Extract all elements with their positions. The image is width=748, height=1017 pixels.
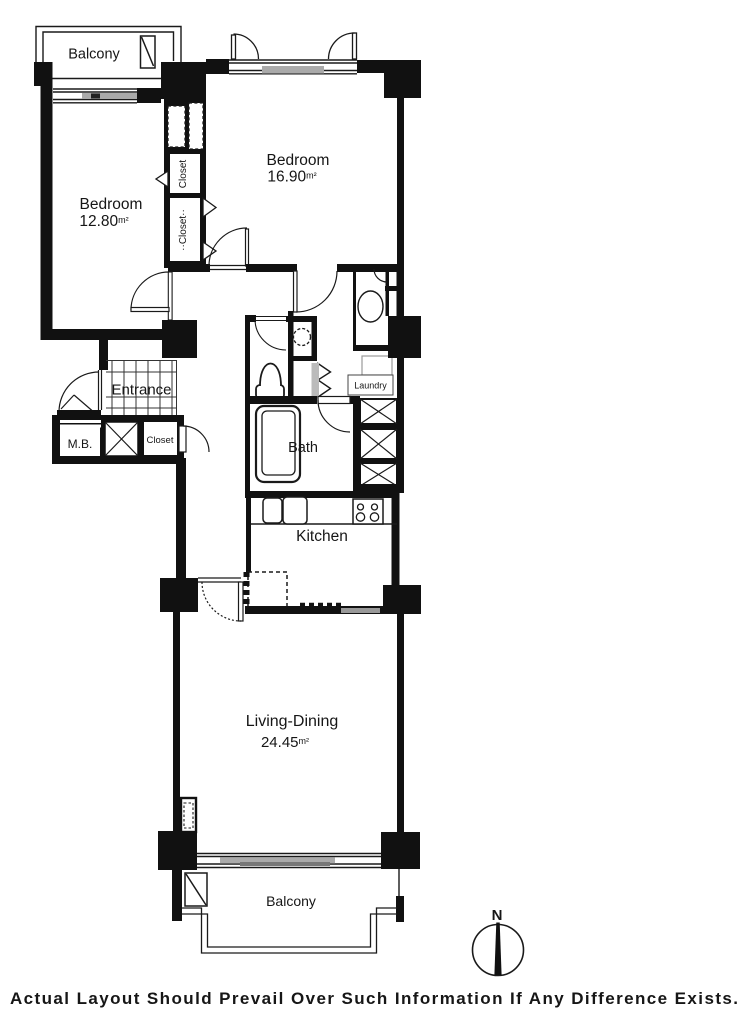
svg-text:Bedroom: Bedroom	[267, 152, 330, 169]
svg-text:Balcony: Balcony	[68, 47, 120, 63]
svg-text:··Closet··: ··Closet··	[178, 209, 189, 251]
svg-text:Closet: Closet	[147, 435, 174, 446]
svg-text:Balcony: Balcony	[266, 893, 316, 909]
svg-text:Living-Dining: Living-Dining	[246, 713, 339, 730]
svg-text:Laundry: Laundry	[354, 381, 387, 391]
svg-text:Actual Layout Should Prevail O: Actual Layout Should Prevail Over Such I…	[10, 989, 738, 1008]
svg-text:Bath: Bath	[288, 440, 318, 456]
svg-text:Kitchen: Kitchen	[296, 528, 348, 545]
svg-text:Entrance: Entrance	[111, 382, 171, 399]
svg-text:M.B.: M.B.	[68, 437, 93, 451]
svg-text:Closet: Closet	[178, 160, 189, 189]
svg-text:N: N	[492, 907, 503, 924]
svg-text:Bedroom: Bedroom	[80, 196, 143, 213]
